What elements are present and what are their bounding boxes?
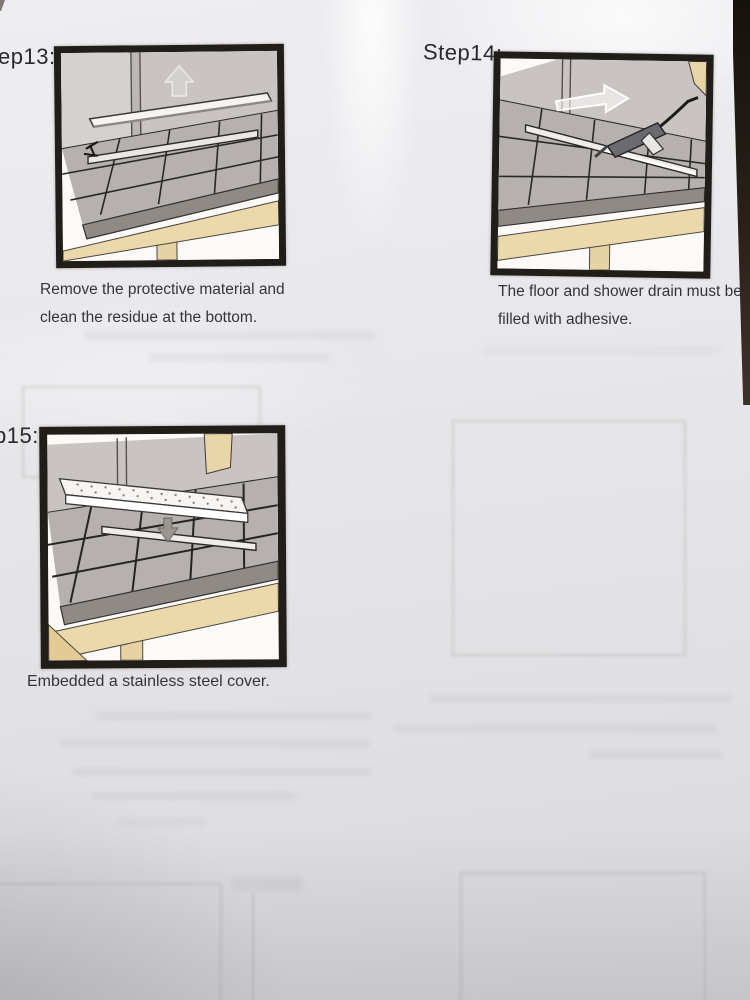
table-edge-corner: [0, 0, 5, 11]
bleed-through-step-word: [231, 876, 303, 891]
step13-drawing: [61, 51, 279, 261]
bleed-through-text-line: [84, 331, 376, 340]
step13-illustration: [54, 44, 286, 268]
bleed-through-text-line: [118, 818, 206, 827]
bleed-through-text-line: [95, 711, 373, 720]
caption-line: The floor and shower drain must be: [498, 283, 742, 300]
photographed-instruction-page: ep13:: [0, 0, 750, 1000]
step13-label: ep13:: [0, 44, 56, 70]
table-edge: [733, 0, 750, 405]
wood-stud: [204, 434, 232, 474]
bleed-through-text-line: [92, 791, 297, 800]
step14-illustration: [490, 51, 713, 278]
bleed-through-figure-box: [460, 872, 706, 1000]
caption-line: Embedded a stainless steel cover.: [27, 673, 270, 690]
bleed-through-figure-box: [0, 883, 222, 1000]
bleed-through-text-line: [428, 694, 733, 703]
step14-drawing: [497, 58, 706, 271]
bleed-through-text-line: [58, 739, 370, 748]
step15-illustration: [39, 425, 287, 669]
bleed-through-text-line: [588, 750, 723, 759]
bleed-through-text-line: [148, 353, 330, 362]
step14-label: Step14:: [423, 39, 503, 67]
caption-line: filled with adhesive.: [498, 311, 632, 328]
caption-line: Remove the protective material and: [40, 281, 285, 298]
step15-drawing: [47, 433, 279, 661]
step14-caption: The floor and shower drain must be fille…: [498, 278, 750, 334]
bleed-through-text-line: [72, 767, 372, 776]
step15-label: p15:: [0, 423, 39, 449]
bleed-through-figure-line: [252, 892, 254, 1000]
caption-line: clean the residue at the bottom.: [40, 309, 257, 326]
paper-sheen-streak: [322, 0, 422, 260]
bleed-through-text-line: [393, 724, 718, 733]
step13-caption: Remove the protective material and clean…: [40, 276, 300, 332]
bleed-through-figure-box: [452, 420, 686, 656]
bleed-through-text-line: [482, 346, 722, 355]
step15-caption: Embedded a stainless steel cover.: [27, 668, 327, 696]
